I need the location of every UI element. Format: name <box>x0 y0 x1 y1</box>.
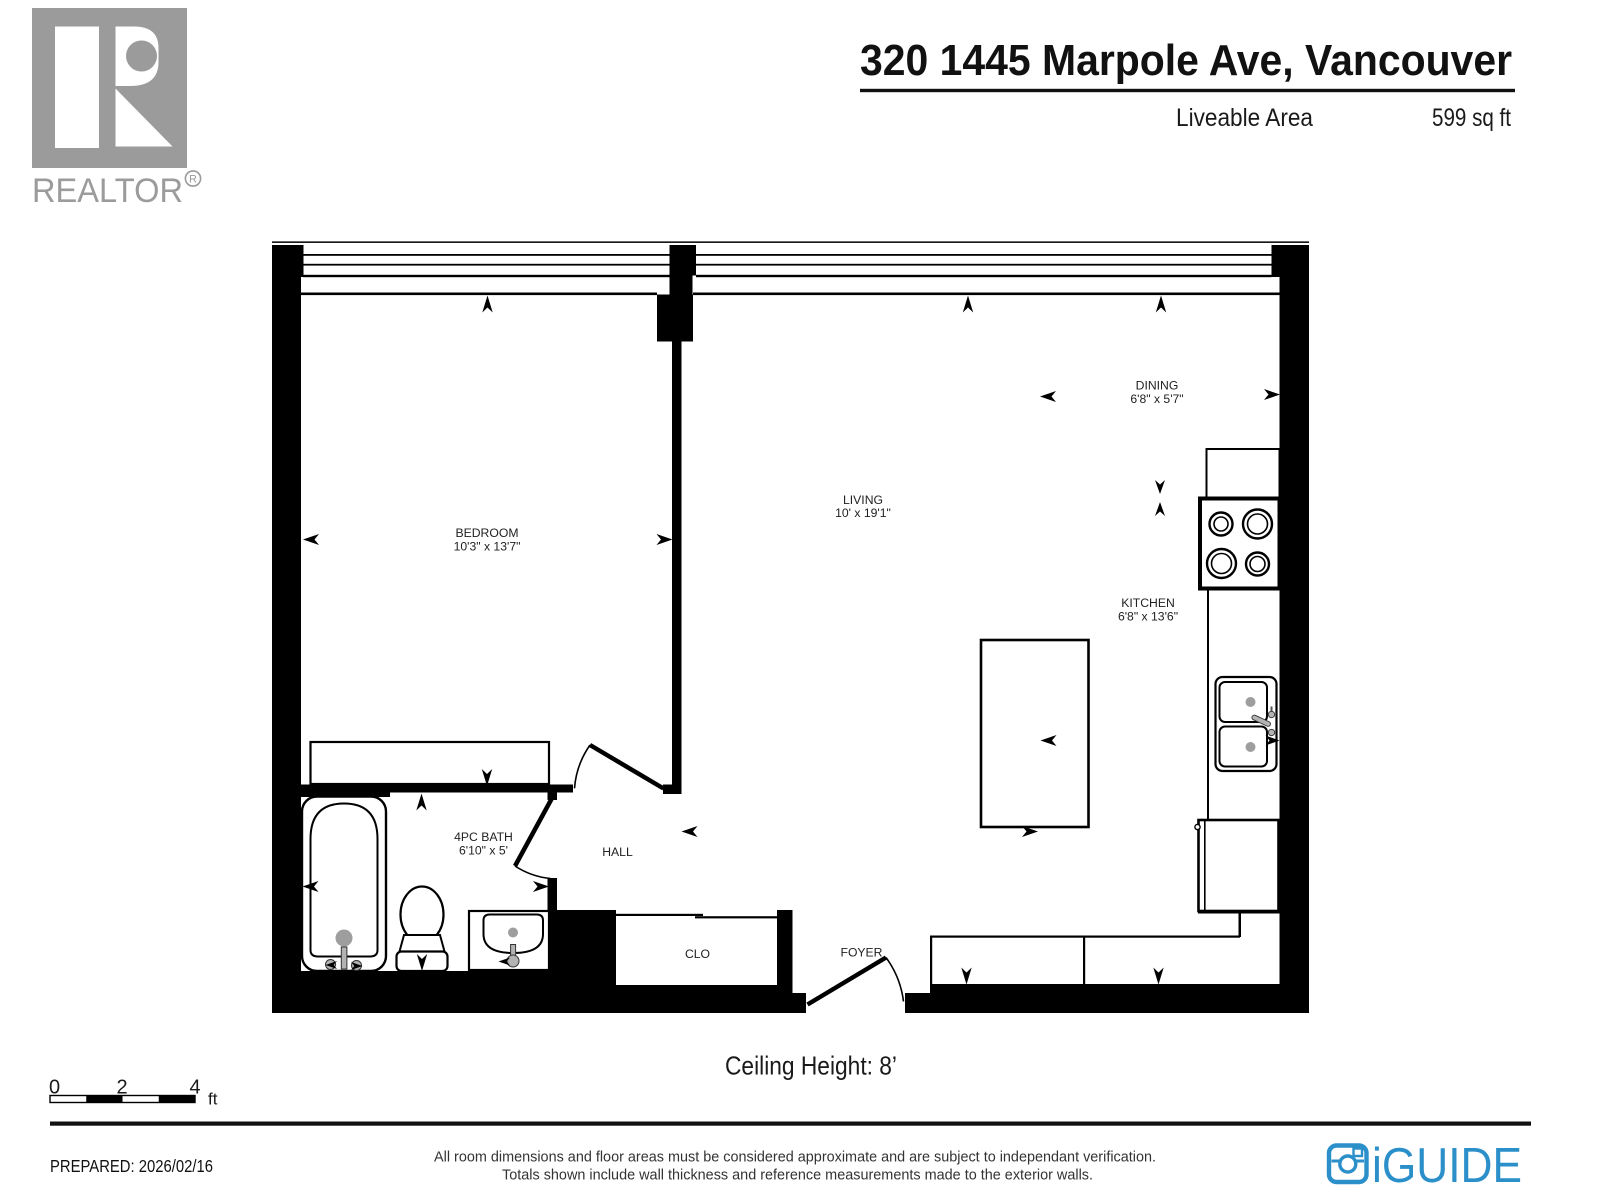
svg-text:6'10" x 5': 6'10" x 5' <box>459 844 508 858</box>
svg-text:FOYER: FOYER <box>841 946 883 960</box>
svg-text:Liveable Area: Liveable Area <box>1176 104 1313 132</box>
svg-text:DINING: DINING <box>1136 379 1179 393</box>
svg-text:599 sq ft: 599 sq ft <box>1432 104 1511 132</box>
svg-text:6'8" x 5'7": 6'8" x 5'7" <box>1130 392 1183 406</box>
svg-text:320 1445 Marpole Ave, Vancouve: 320 1445 Marpole Ave, Vancouver <box>860 36 1512 85</box>
svg-text:Totals shown include wall thic: Totals shown include wall thickness and … <box>502 1167 1093 1184</box>
svg-text:BEDROOM: BEDROOM <box>456 526 519 540</box>
svg-text:CLO: CLO <box>685 947 710 961</box>
svg-text:10' x 19'1": 10' x 19'1" <box>835 506 891 520</box>
svg-text:All room dimensions and floor: All room dimensions and floor areas must… <box>434 1149 1156 1166</box>
svg-text:HALL: HALL <box>602 845 633 859</box>
svg-text:LIVING: LIVING <box>843 493 883 507</box>
svg-text:ft: ft <box>208 1090 218 1109</box>
svg-text:Ceiling Height: 8’: Ceiling Height: 8’ <box>725 1051 897 1081</box>
svg-text:6'8" x 13'6": 6'8" x 13'6" <box>1118 610 1178 624</box>
svg-text:iGUIDE: iGUIDE <box>1372 1139 1522 1193</box>
svg-text:REALTOR: REALTOR <box>32 172 183 210</box>
svg-text:PREPARED: 2026/02/16: PREPARED: 2026/02/16 <box>50 1156 213 1176</box>
svg-text:R: R <box>189 174 197 186</box>
svg-text:10'3" x 13'7": 10'3" x 13'7" <box>454 540 521 554</box>
svg-text:KITCHEN: KITCHEN <box>1121 596 1175 610</box>
svg-text:4PC BATH: 4PC BATH <box>454 830 513 844</box>
